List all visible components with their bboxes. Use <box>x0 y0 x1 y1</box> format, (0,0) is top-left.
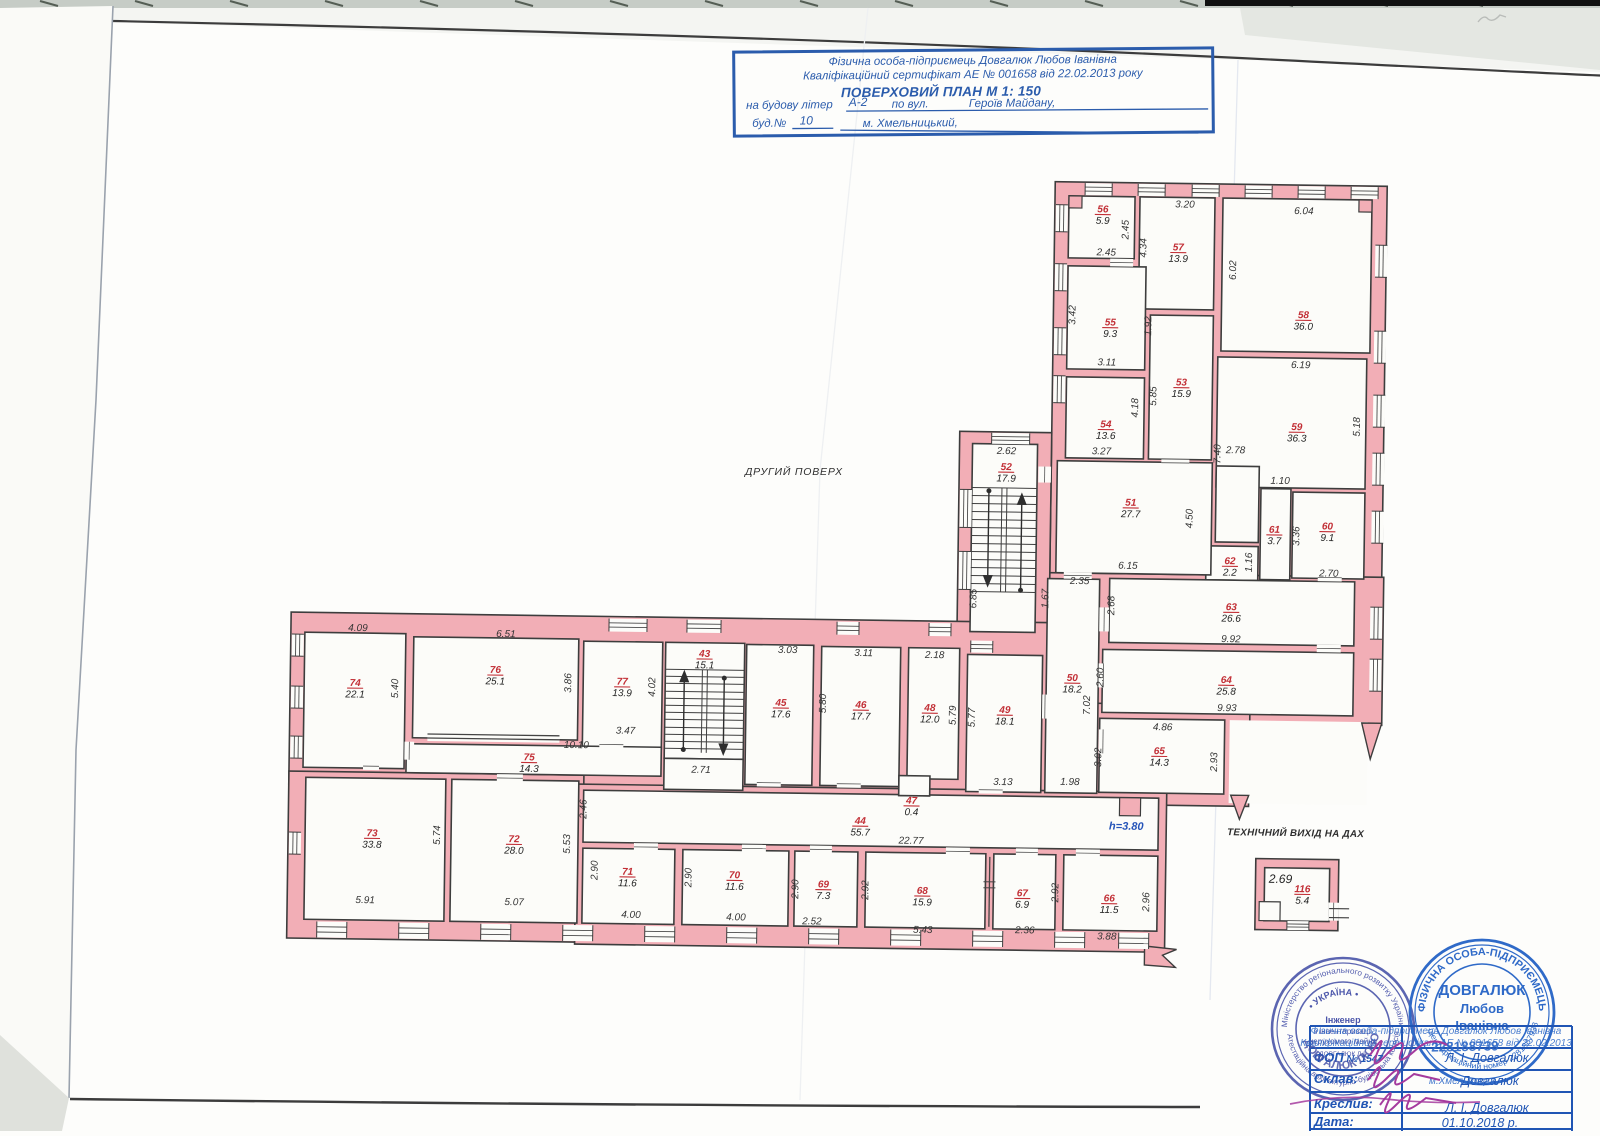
svg-text:2.60: 2.60 <box>1095 667 1106 688</box>
svg-text:ДРУГИЙ ПОВЕРХ: ДРУГИЙ ПОВЕРХ <box>744 465 843 478</box>
svg-text:7.02: 7.02 <box>1082 695 1093 715</box>
svg-text:28.0: 28.0 <box>503 846 524 857</box>
svg-text:9.1: 9.1 <box>1320 533 1334 544</box>
svg-text:66: 66 <box>1104 893 1116 904</box>
svg-text:Фізична особа-підприємець До: Фізична особа-підприємець Довгалюк Любов… <box>829 54 1117 69</box>
svg-text:15.9: 15.9 <box>1171 389 1191 400</box>
svg-text:2.52: 2.52 <box>801 916 822 927</box>
svg-text:Любов: Любов <box>1460 1001 1504 1016</box>
svg-text:буд.№: буд.№ <box>752 118 787 130</box>
svg-text:5.43: 5.43 <box>913 925 933 936</box>
svg-text:15.1: 15.1 <box>695 660 715 671</box>
svg-text:3.03: 3.03 <box>778 645 798 656</box>
svg-text:57: 57 <box>1173 242 1185 253</box>
svg-text:4.00: 4.00 <box>621 910 641 921</box>
svg-text:10.10: 10.10 <box>564 740 590 751</box>
svg-text:2.18: 2.18 <box>924 650 945 661</box>
svg-text:18.1: 18.1 <box>995 716 1015 727</box>
svg-text:5.53: 5.53 <box>562 834 573 854</box>
svg-text:3.88: 3.88 <box>1097 931 1117 942</box>
svg-text:h=3.80: h=3.80 <box>1109 820 1145 832</box>
svg-text:59: 59 <box>1291 422 1303 433</box>
svg-text:3.11: 3.11 <box>854 648 873 659</box>
svg-text:1.67: 1.67 <box>1040 588 1051 608</box>
svg-text:2.46: 2.46 <box>578 799 589 820</box>
svg-text:116: 116 <box>1294 884 1311 895</box>
svg-text:Склав:: Склав: <box>1314 1071 1358 1086</box>
svg-text:2.35: 2.35 <box>1069 576 1090 587</box>
svg-text:76: 76 <box>490 665 502 676</box>
svg-text:6.15: 6.15 <box>1118 561 1138 572</box>
svg-text:2.90: 2.90 <box>683 867 694 888</box>
svg-text:2.71: 2.71 <box>690 765 711 776</box>
svg-text:6.85: 6.85 <box>968 588 979 608</box>
svg-text:1.16: 1.16 <box>1244 552 1255 572</box>
svg-text:3.27: 3.27 <box>1092 446 1112 457</box>
svg-text:77: 77 <box>617 677 629 688</box>
svg-text:13.9: 13.9 <box>1168 254 1188 265</box>
svg-text:9.92: 9.92 <box>1221 634 1241 645</box>
svg-text:5.79: 5.79 <box>948 705 959 725</box>
svg-text:75: 75 <box>524 752 536 763</box>
svg-text:3.36: 3.36 <box>1291 526 1302 546</box>
svg-text:А-2: А-2 <box>848 95 868 109</box>
svg-text:33.8: 33.8 <box>362 840 382 851</box>
svg-text:46: 46 <box>854 700 867 711</box>
svg-text:11.6: 11.6 <box>618 878 637 889</box>
svg-text:5.80: 5.80 <box>818 693 829 713</box>
svg-text:2.92: 2.92 <box>860 880 871 901</box>
svg-text:5.40: 5.40 <box>390 678 401 698</box>
svg-text:4.09: 4.09 <box>348 623 368 634</box>
svg-text:70: 70 <box>729 870 741 881</box>
svg-text:17.7: 17.7 <box>851 711 871 722</box>
svg-text:4.02: 4.02 <box>647 677 658 697</box>
svg-text:26.6: 26.6 <box>1220 614 1241 625</box>
svg-text:2.62: 2.62 <box>996 446 1017 457</box>
svg-text:22.1: 22.1 <box>344 689 365 700</box>
svg-text:5.4: 5.4 <box>1295 896 1309 907</box>
svg-text:52: 52 <box>1001 462 1013 473</box>
svg-text:61: 61 <box>1269 525 1281 536</box>
svg-text:48: 48 <box>923 703 936 714</box>
svg-text:4.50: 4.50 <box>1184 508 1195 528</box>
svg-text:49: 49 <box>998 705 1011 716</box>
svg-text:5.91: 5.91 <box>355 895 375 906</box>
svg-text:2.2: 2.2 <box>1222 568 1237 579</box>
svg-text:7.40: 7.40 <box>1212 444 1223 464</box>
svg-text:3.47: 3.47 <box>616 726 636 737</box>
svg-text:3.7: 3.7 <box>1267 536 1281 547</box>
svg-text:1.92: 1.92 <box>1143 316 1154 336</box>
svg-text:5.74: 5.74 <box>432 825 443 845</box>
svg-text:2.68: 2.68 <box>1106 595 1117 616</box>
svg-text:45: 45 <box>774 698 787 709</box>
svg-text:13.9: 13.9 <box>612 688 632 699</box>
svg-text:11.6: 11.6 <box>725 882 744 893</box>
svg-text:4.86: 4.86 <box>1153 722 1173 733</box>
svg-text:01.10.2018 р.: 01.10.2018 р. <box>1442 1116 1518 1130</box>
svg-text:54: 54 <box>1100 419 1112 430</box>
svg-text:12.0: 12.0 <box>920 714 940 725</box>
svg-text:5.18: 5.18 <box>1352 417 1363 437</box>
svg-text:ДОВГАЛЮК: ДОВГАЛЮК <box>1439 982 1527 999</box>
svg-text:по вул.: по вул. <box>892 98 929 110</box>
svg-text:50: 50 <box>1067 673 1079 684</box>
svg-text:9.93: 9.93 <box>1217 703 1237 714</box>
svg-text:ТЕХНІЧНИЙ ВИХІД НА ДАХ: ТЕХНІЧНИЙ ВИХІД НА ДАХ <box>1227 826 1365 840</box>
svg-text:3.13: 3.13 <box>993 777 1013 788</box>
svg-text:53: 53 <box>1176 377 1188 388</box>
svg-text:6.02: 6.02 <box>1228 260 1239 280</box>
svg-text:14.3: 14.3 <box>519 764 539 775</box>
svg-text:2.45: 2.45 <box>1120 219 1131 240</box>
svg-text:2.96: 2.96 <box>1141 892 1152 913</box>
svg-text:5.85: 5.85 <box>1148 386 1159 406</box>
svg-text:60: 60 <box>1322 521 1334 532</box>
svg-text:5.9: 5.9 <box>1096 216 1110 227</box>
svg-text:17.6: 17.6 <box>771 709 791 720</box>
svg-text:25.1: 25.1 <box>484 676 505 687</box>
svg-text:3.20: 3.20 <box>1175 199 1195 210</box>
svg-text:Інженер: Інженер <box>1325 1015 1361 1025</box>
svg-text:2.92: 2.92 <box>1050 883 1061 904</box>
svg-text:5.77: 5.77 <box>967 707 978 727</box>
svg-text:2.36: 2.36 <box>1014 925 1035 936</box>
svg-text:1.98: 1.98 <box>1060 777 1080 788</box>
svg-text:51: 51 <box>1125 498 1137 509</box>
svg-text:4.00: 4.00 <box>726 912 746 923</box>
svg-text:74: 74 <box>350 678 362 689</box>
svg-text:5.07: 5.07 <box>504 897 524 908</box>
svg-text:55.7: 55.7 <box>850 827 870 838</box>
svg-text:4.34: 4.34 <box>1138 238 1149 258</box>
svg-text:11.5: 11.5 <box>1100 905 1119 916</box>
svg-text:27.7: 27.7 <box>1120 509 1141 520</box>
svg-text:3.42: 3.42 <box>1067 305 1078 325</box>
svg-text:1.10: 1.10 <box>1270 476 1290 487</box>
svg-text:м. Хмельницький,: м. Хмельницький, <box>863 117 958 130</box>
svg-text:3.86: 3.86 <box>563 673 574 693</box>
svg-text:6.9: 6.9 <box>1015 900 1029 911</box>
svg-text:43: 43 <box>698 649 711 660</box>
svg-text:72: 72 <box>508 834 520 845</box>
svg-text:2.70: 2.70 <box>1318 568 1339 579</box>
svg-text:2.45: 2.45 <box>1095 247 1116 258</box>
svg-text:3.02: 3.02 <box>1093 747 1104 767</box>
svg-text:9.3: 9.3 <box>1103 329 1117 340</box>
svg-text:2.90: 2.90 <box>589 860 600 881</box>
svg-text:67: 67 <box>1017 888 1029 899</box>
svg-text:68: 68 <box>917 886 929 897</box>
svg-text:Дата:: Дата: <box>1313 1114 1354 1129</box>
svg-text:на будову літер: на будову літер <box>746 99 833 112</box>
svg-text:56: 56 <box>1097 204 1109 215</box>
svg-text:71: 71 <box>622 867 634 878</box>
svg-text:36.0: 36.0 <box>1293 322 1313 333</box>
svg-text:44: 44 <box>854 816 867 827</box>
svg-text:м.Хмельницьк: м.Хмельницьк <box>1429 1076 1496 1087</box>
svg-text:2.90: 2.90 <box>790 879 801 900</box>
svg-text:17.9: 17.9 <box>996 473 1016 484</box>
svg-text:63: 63 <box>1226 602 1238 613</box>
svg-text:2.69: 2.69 <box>1268 872 1293 886</box>
svg-text:58: 58 <box>1298 310 1310 321</box>
svg-text:15.9: 15.9 <box>912 897 932 908</box>
svg-text:73: 73 <box>366 828 378 839</box>
svg-text:Кваліфікаційний сертифікат АЕ: Кваліфікаційний сертифікат АЕ № 001658 в… <box>1300 1037 1572 1049</box>
svg-text:25.8: 25.8 <box>1215 686 1236 697</box>
svg-text:6.51: 6.51 <box>496 629 516 640</box>
svg-text:55: 55 <box>1105 317 1117 328</box>
svg-text:Фізична особа-підприємець Довг: Фізична особа-підприємець Довгалюк Любов… <box>1311 1025 1562 1037</box>
svg-text:47: 47 <box>905 796 918 807</box>
svg-text:36.3: 36.3 <box>1287 433 1307 444</box>
svg-text:6.19: 6.19 <box>1291 360 1311 371</box>
svg-text:2.78: 2.78 <box>1225 445 1246 456</box>
svg-text:3.11: 3.11 <box>1097 357 1116 368</box>
svg-text:18.2: 18.2 <box>1062 684 1082 695</box>
svg-text:13.6: 13.6 <box>1096 431 1116 442</box>
svg-text:14.3: 14.3 <box>1149 758 1169 769</box>
svg-text:Героїв Майдану,: Героїв Майдану, <box>969 97 1056 110</box>
svg-text:6.04: 6.04 <box>1294 206 1314 217</box>
svg-text:2.93: 2.93 <box>1209 752 1220 773</box>
svg-text:64: 64 <box>1221 675 1233 686</box>
svg-text:22.77: 22.77 <box>897 836 924 847</box>
svg-text:0.4: 0.4 <box>904 807 918 818</box>
svg-text:69: 69 <box>818 879 830 890</box>
svg-text:10: 10 <box>800 113 814 127</box>
svg-text:4.18: 4.18 <box>1130 398 1141 418</box>
svg-text:65: 65 <box>1154 746 1166 757</box>
svg-text:62: 62 <box>1224 556 1236 567</box>
svg-text:7.3: 7.3 <box>816 891 830 902</box>
